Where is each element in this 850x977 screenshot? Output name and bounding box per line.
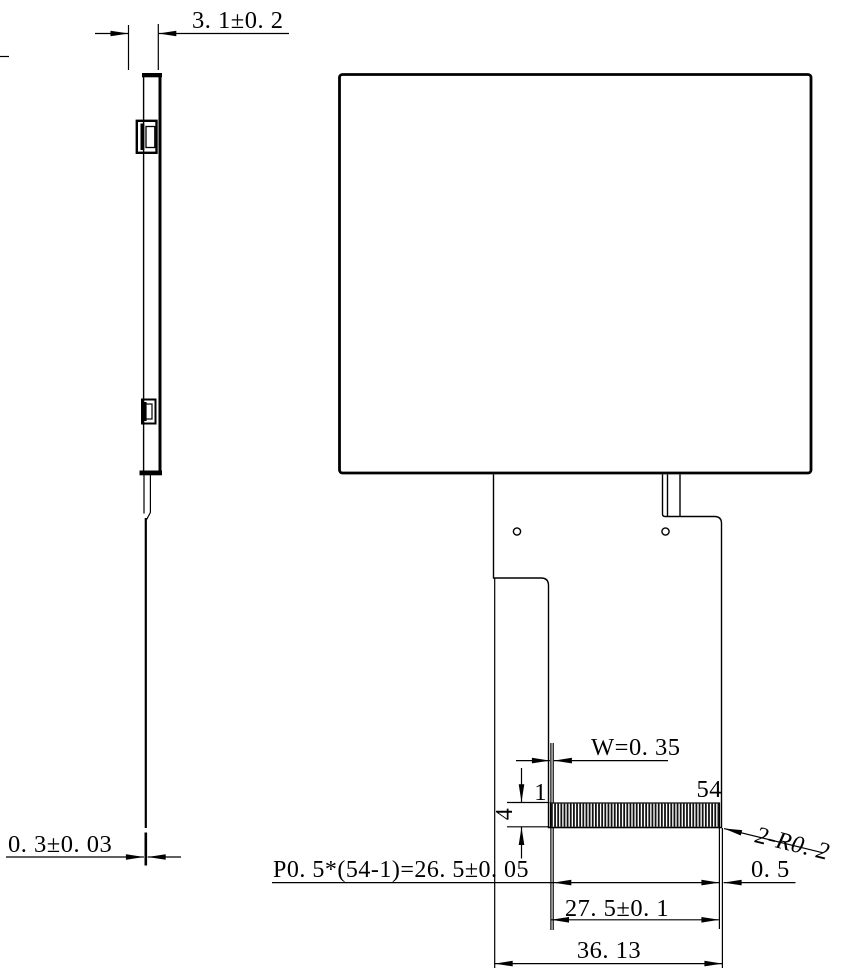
dim-fpc-width: 36. 13: [495, 937, 723, 966]
dim-fpc-thickness: 0. 3±0. 03: [6, 831, 181, 866]
technical-drawing: 3. 1±0. 2: [0, 0, 850, 977]
dim-side-thickness-label: 3. 1±0. 2: [192, 7, 283, 34]
dim-pin-width: W=0. 35: [516, 734, 680, 763]
dim-pin-width-label: W=0. 35: [591, 734, 680, 761]
alignment-hole-left: [513, 528, 520, 535]
dim-pin-span: 27. 5±0. 1: [551, 895, 719, 923]
side-clip-lower: [142, 400, 156, 424]
dim-pin-span-label: 27. 5±0. 1: [565, 895, 669, 922]
pin-hatch: [552, 804, 719, 827]
dim-edge-margin: 0. 5: [724, 856, 796, 885]
dim-pin-pitch-label: P0. 5*(54-1)=26. 5±0. 05: [273, 857, 529, 883]
side-bottom-cap: [140, 471, 163, 476]
side-clip-upper: [137, 121, 157, 153]
pin-last-label: 54: [697, 776, 723, 803]
display-outline: [340, 75, 812, 474]
alignment-hole-right: [662, 528, 669, 535]
dim-pin-pitch: P0. 5*(54-1)=26. 5±0. 05: [272, 857, 719, 885]
dim-fpc-width-label: 36. 13: [577, 937, 641, 964]
dim-pin-area-height-label: 4: [492, 808, 518, 821]
front-view: W=0. 35 1 54 4 2-R0. 2: [272, 75, 832, 969]
side-body: [137, 73, 162, 828]
side-fpc-tail: [144, 475, 150, 828]
fpc-outline: [494, 475, 722, 828]
drawing-canvas: 3. 1±0. 2: [0, 0, 850, 977]
pin-band: [551, 803, 720, 828]
dim-edge-margin-label: 0. 5: [751, 856, 790, 883]
dim-side-thickness: 3. 1±0. 2: [95, 7, 289, 70]
side-view: 3. 1±0. 2: [0, 7, 289, 866]
dim-fpc-thickness-label: 0. 3±0. 03: [8, 831, 112, 858]
